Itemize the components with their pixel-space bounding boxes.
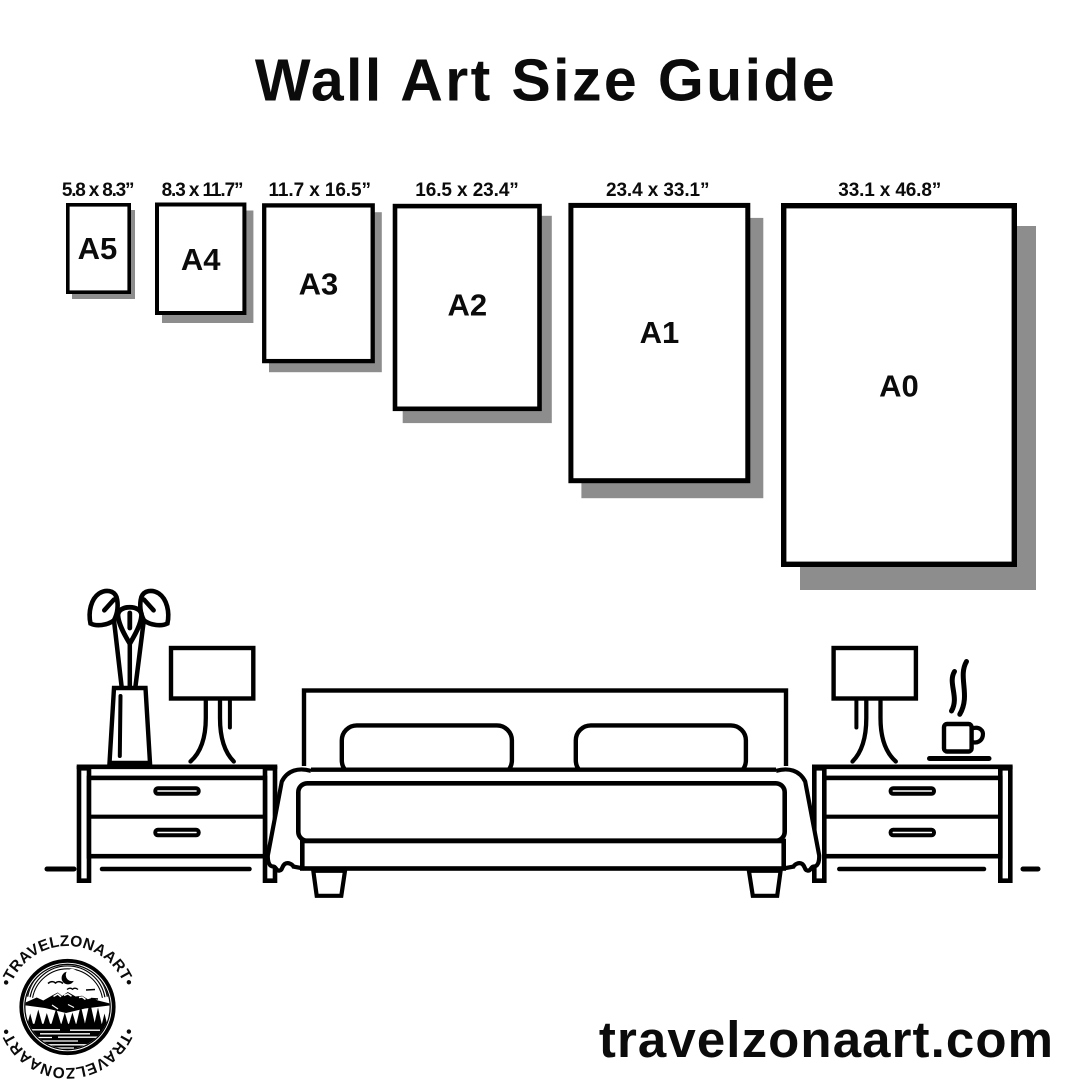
svg-text:33.1 x 46.8”: 33.1 x 46.8” bbox=[838, 180, 941, 201]
svg-text:16.5 x 23.4”: 16.5 x 23.4” bbox=[415, 180, 518, 201]
svg-text:A5: A5 bbox=[78, 231, 118, 266]
svg-text:8.3 x 11.7”: 8.3 x 11.7” bbox=[162, 180, 243, 201]
svg-text:23.4 x 33.1”: 23.4 x 33.1” bbox=[606, 180, 709, 201]
svg-text:A1: A1 bbox=[640, 315, 680, 350]
svg-text:5.8 x 8.3”: 5.8 x 8.3” bbox=[62, 180, 134, 201]
svg-text:A0: A0 bbox=[879, 368, 919, 403]
svg-text:A4: A4 bbox=[181, 242, 221, 277]
svg-text:11.7 x 16.5”: 11.7 x 16.5” bbox=[269, 180, 371, 201]
svg-text:A3: A3 bbox=[299, 267, 339, 302]
svg-text:travelzonaart.com: travelzonaart.com bbox=[599, 1011, 1054, 1068]
svg-text:A2: A2 bbox=[447, 288, 487, 323]
svg-text:Wall Art Size Guide: Wall Art Size Guide bbox=[255, 48, 837, 114]
